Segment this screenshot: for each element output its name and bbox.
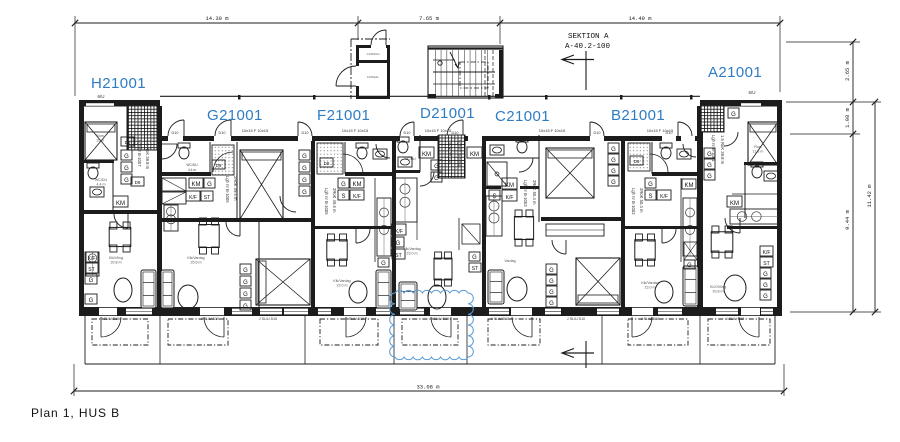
svg-text:Plan 1, HUS B: Plan 1, HUS B xyxy=(31,406,120,420)
svg-text:G: G xyxy=(707,174,712,180)
svg-text:K/F: K/F xyxy=(88,256,96,262)
svg-text:Klk/Vardag: Klk/Vardag xyxy=(333,279,350,283)
svg-text:G: G xyxy=(124,178,129,184)
svg-text:10x15 F 10x15: 10x15 F 10x15 xyxy=(242,128,269,133)
svg-text:Lgh nr B-1006: Lgh nr B-1006 xyxy=(225,176,230,203)
svg-text:11.42 m: 11.42 m xyxy=(866,184,873,208)
svg-text:D9: D9 xyxy=(125,140,131,145)
svg-text:D10: D10 xyxy=(452,131,459,135)
svg-text:K/F: K/F xyxy=(353,194,361,200)
svg-text:10x15 F 10x15: 10x15 F 10x15 xyxy=(647,128,674,133)
svg-text:2.65 m: 2.65 m xyxy=(844,60,851,81)
svg-text:Lgh nr B-1005: Lgh nr B-1005 xyxy=(324,188,329,215)
svg-text:2RoK 49.6 m: 2RoK 49.6 m xyxy=(332,188,337,213)
svg-text:SEKTION A: SEKTION A xyxy=(568,33,609,41)
svg-text:S: S xyxy=(648,194,652,200)
svg-text:D10: D10 xyxy=(594,131,601,135)
svg-text:KM: KM xyxy=(685,183,694,189)
svg-text:Lgh nr B-1004: Lgh nr B-1004 xyxy=(457,140,462,167)
svg-text:G: G xyxy=(549,279,554,285)
svg-text:ST: ST xyxy=(395,253,401,259)
svg-text:G: G xyxy=(731,112,736,118)
svg-text:D9: D9 xyxy=(216,163,222,168)
svg-text:11 m: 11 m xyxy=(96,139,104,143)
svg-text:G: G xyxy=(611,147,616,153)
svg-text:S: S xyxy=(492,194,496,200)
svg-text:J SL/U D10: J SL/U D10 xyxy=(259,317,277,321)
svg-text:G: G xyxy=(472,255,477,261)
svg-text:G: G xyxy=(341,182,346,188)
svg-text:KM: KM xyxy=(192,182,201,188)
svg-text:C21001: C21001 xyxy=(495,108,550,125)
svg-text:K/F: K/F xyxy=(506,195,514,201)
svg-text:D9: D9 xyxy=(324,161,330,166)
svg-text:KM: KM xyxy=(422,152,431,158)
svg-text:Lgh nr B-1003: Lgh nr B-1003 xyxy=(523,180,528,207)
svg-text:Vardag: Vardag xyxy=(504,259,515,263)
svg-text:J SL/U D10: J SL/U D10 xyxy=(201,317,219,321)
svg-text:G: G xyxy=(243,292,248,298)
svg-text:1RoK 32.4 m: 1RoK 32.4 m xyxy=(447,140,452,165)
svg-text:Klk/Vardag: Klk/Vardag xyxy=(403,247,420,251)
svg-text:CUNSCH: CUNSCH xyxy=(367,52,380,56)
svg-text:G: G xyxy=(434,176,439,182)
svg-text:G: G xyxy=(763,283,768,289)
svg-text:33.08 m: 33.08 m xyxy=(416,384,440,391)
svg-text:G: G xyxy=(124,154,129,160)
svg-text:G: G xyxy=(302,190,307,196)
svg-text:4.4 m: 4.4 m xyxy=(188,168,196,172)
svg-text:D10: D10 xyxy=(172,131,179,135)
svg-text:J SL/U D10: J SL/U D10 xyxy=(726,317,744,321)
svg-text:G: G xyxy=(243,304,248,310)
svg-text:10x15 F 10x15: 10x15 F 10x15 xyxy=(342,128,369,133)
svg-text:G: G xyxy=(302,154,307,160)
svg-text:G: G xyxy=(763,272,768,278)
svg-text:A-40.2-100: A-40.2-100 xyxy=(565,43,611,51)
svg-text:G: G xyxy=(302,166,307,172)
svg-text:G: G xyxy=(707,163,712,169)
svg-text:ST: ST xyxy=(763,261,769,267)
svg-text:K/F: K/F xyxy=(395,229,403,235)
svg-text:K/F: K/F xyxy=(763,250,771,256)
svg-text:G: G xyxy=(763,294,768,300)
svg-text:D10: D10 xyxy=(404,131,411,135)
svg-text:ST: ST xyxy=(88,267,94,273)
svg-text:6/U: 6/U xyxy=(97,94,104,99)
svg-text:2RoK 50.4 m: 2RoK 50.4 m xyxy=(532,180,537,205)
svg-text:G: G xyxy=(611,169,616,175)
svg-text:WC/DU: WC/DU xyxy=(95,178,108,182)
svg-text:9.44 m: 9.44 m xyxy=(844,209,851,230)
svg-text:J SL/U D10: J SL/U D10 xyxy=(491,317,509,321)
svg-text:KM: KM xyxy=(116,201,125,207)
svg-text:D10: D10 xyxy=(219,131,226,135)
svg-text:G: G xyxy=(549,290,554,296)
svg-text:1.5 RoK 39.8 m: 1.5 RoK 39.8 m xyxy=(145,140,150,170)
svg-text:Lgh nr B-1007: Lgh nr B-1007 xyxy=(137,140,142,167)
svg-text:2RoK 50.4 m: 2RoK 50.4 m xyxy=(639,188,644,213)
svg-text:Rum: Rum xyxy=(96,134,104,138)
svg-text:G: G xyxy=(207,182,212,188)
svg-text:1.98 m: 1.98 m xyxy=(844,107,851,128)
svg-text:4.4 m: 4.4 m xyxy=(97,183,106,187)
svg-text:20.8 m: 20.8 m xyxy=(111,261,122,265)
svg-text:7.65 m: 7.65 m xyxy=(419,15,440,22)
svg-text:20.8 m: 20.8 m xyxy=(713,290,724,294)
svg-text:ST: ST xyxy=(204,195,210,201)
svg-text:J SL/U D10: J SL/U D10 xyxy=(101,317,119,321)
svg-text:S: S xyxy=(341,194,345,200)
svg-text:D9: D9 xyxy=(135,180,141,185)
svg-text:A21001: A21001 xyxy=(708,64,762,81)
svg-text:G: G xyxy=(243,280,248,286)
svg-text:D21001: D21001 xyxy=(420,105,475,122)
svg-text:KM: KM xyxy=(470,152,479,158)
svg-text:11.3 m: 11.3 m xyxy=(753,150,764,154)
svg-text:14.49 m: 14.49 m xyxy=(628,15,652,22)
svg-text:G: G xyxy=(687,263,692,269)
svg-text:ST: ST xyxy=(472,266,478,272)
svg-text:G: G xyxy=(549,301,554,307)
svg-text:J SL/U D10: J SL/U D10 xyxy=(641,317,659,321)
svg-text:23.0 m: 23.0 m xyxy=(407,252,418,256)
svg-text:K/F: K/F xyxy=(189,195,197,201)
svg-text:25.6 m: 25.6 m xyxy=(191,261,202,265)
svg-text:G: G xyxy=(549,268,554,274)
svg-text:Klk/Vling: Klk/Vling xyxy=(109,256,123,260)
svg-text:10x15 F 10x15: 10x15 F 10x15 xyxy=(425,128,452,133)
svg-text:Klk/Vardag: Klk/Vardag xyxy=(187,256,204,260)
svg-text:14.30 m: 14.30 m xyxy=(205,15,229,22)
svg-text:D9: D9 xyxy=(634,159,640,164)
svg-text:FUNSAL: FUNSAL xyxy=(367,75,379,79)
svg-text:G: G xyxy=(381,261,386,267)
svg-text:J SL/U D10: J SL/U D10 xyxy=(567,317,585,321)
svg-text:Lgh nr B-1001: Lgh nr B-1001 xyxy=(711,135,716,162)
svg-text:6/U: 6/U xyxy=(748,90,755,95)
svg-text:G: G xyxy=(611,158,616,164)
svg-text:Lgh nr B-1002: Lgh nr B-1002 xyxy=(631,188,636,215)
svg-text:B21001: B21001 xyxy=(611,107,665,124)
svg-text:H21001: H21001 xyxy=(91,75,146,92)
svg-text:23.0 m: 23.0 m xyxy=(337,284,348,288)
svg-text:1.5 RoK 39.8 m: 1.5 RoK 39.8 m xyxy=(720,135,725,165)
svg-text:G: G xyxy=(611,180,616,186)
svg-text:J SL/U D10: J SL/U D10 xyxy=(346,317,364,321)
svg-text:23.0 m: 23.0 m xyxy=(645,286,656,290)
svg-text:WC/DU: WC/DU xyxy=(404,157,416,161)
svg-text:Rum: Rum xyxy=(754,145,762,149)
svg-text:F21001: F21001 xyxy=(317,107,370,124)
svg-text:KM: KM xyxy=(730,201,739,207)
svg-text:G: G xyxy=(89,298,94,304)
svg-text:WC/DU: WC/DU xyxy=(186,163,198,167)
svg-text:G: G xyxy=(302,178,307,184)
svg-text:D10: D10 xyxy=(302,131,309,135)
svg-text:2RoK 49.6 m: 2RoK 49.6 m xyxy=(233,176,238,201)
svg-text:J SL/U D10: J SL/U D10 xyxy=(431,317,449,321)
svg-text:Klk/Vardag: Klk/Vardag xyxy=(641,281,658,285)
svg-text:G: G xyxy=(396,241,401,247)
svg-text:K/F: K/F xyxy=(660,194,668,200)
svg-text:G: G xyxy=(434,164,439,170)
svg-text:G: G xyxy=(124,166,129,172)
svg-text:G: G xyxy=(243,268,248,274)
svg-text:KM: KM xyxy=(353,182,362,188)
svg-text:G: G xyxy=(648,182,653,188)
svg-text:G: G xyxy=(89,278,94,284)
svg-text:G21001: G21001 xyxy=(207,107,263,124)
svg-text:10x15 F 10x15: 10x15 F 10x15 xyxy=(539,128,566,133)
